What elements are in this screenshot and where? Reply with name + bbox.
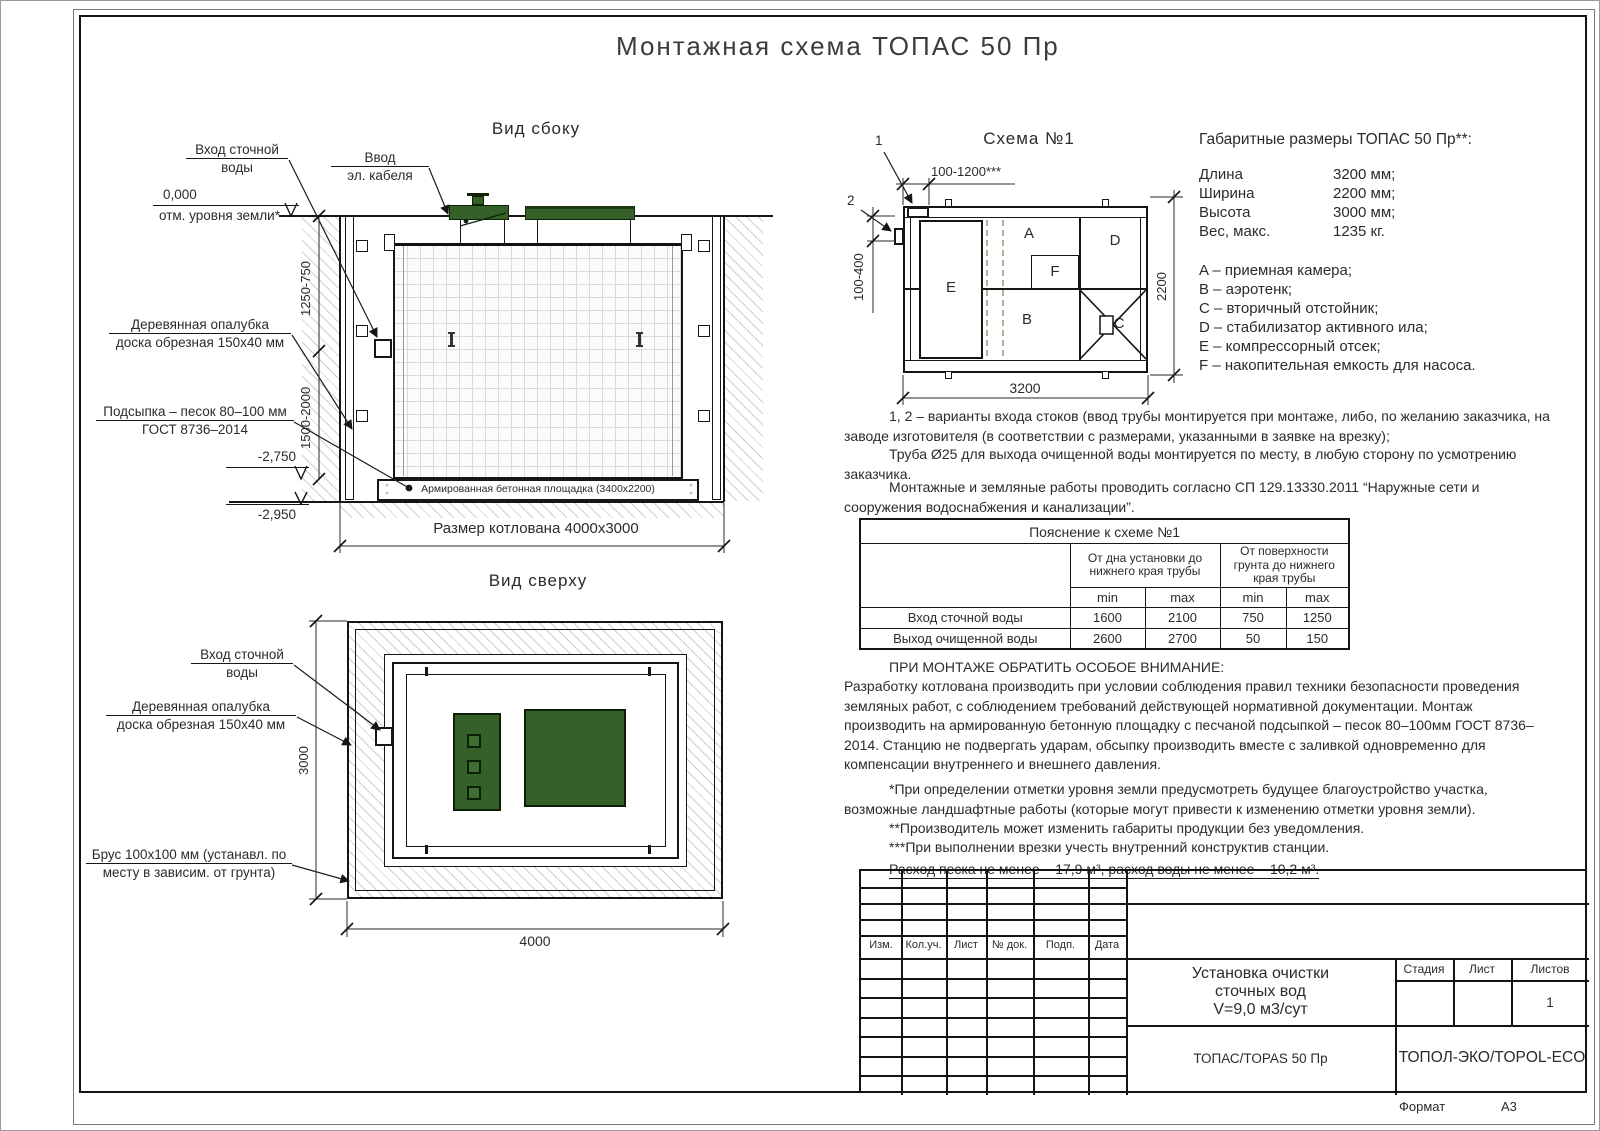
schema-lug <box>1102 199 1109 207</box>
attention-body: Разработку котлована производить при усл… <box>844 677 1554 775</box>
compartment-c-label: C <box>1109 315 1129 332</box>
schema-dim-bottom: 3200 <box>993 380 1057 396</box>
tank-lug <box>648 667 651 676</box>
schema-dim-right: 2200 <box>1153 249 1170 325</box>
format-value: А3 <box>1501 1099 1517 1114</box>
tank-lug <box>425 845 428 854</box>
top-view-title: Вид сверху <box>458 571 618 591</box>
row-value: 150 <box>1286 628 1349 649</box>
row-value: 2600 <box>1070 628 1145 649</box>
formwork-board-right <box>712 216 721 500</box>
level-minus-2950: -2,950 <box>226 507 296 522</box>
spec-label: Высота <box>1199 204 1251 221</box>
schema-callout-2: 2 <box>847 193 855 208</box>
soil-hatch-right <box>725 217 763 501</box>
legend-item: F – накопительная емкость для насоса. <box>1199 357 1476 374</box>
inlet-label-side-line1: Вход сточной <box>186 142 288 159</box>
spec-value: 2200 мм; <box>1333 185 1395 202</box>
tank-lid-right <box>525 206 635 220</box>
tb-col-podp: Подп. <box>1033 939 1088 951</box>
tank-shoulder-left <box>384 234 395 251</box>
inlet-label-top-line1: Вход сточной <box>191 647 293 664</box>
inlet-pipe-top <box>375 727 393 746</box>
formwork-label-top-line2: доска обрезная 150x40 мм <box>106 717 296 732</box>
max-header: max <box>1286 587 1349 607</box>
table-row: Вход сточной воды 1600 2100 750 1250 <box>860 607 1349 628</box>
min-header: min <box>1220 587 1286 607</box>
schema-flange-pos2 <box>894 228 904 245</box>
schema-wall-bottom <box>905 360 1146 361</box>
attention-footnote-1: *При определении отметки уровня земли пр… <box>844 780 1554 819</box>
beam-label-line2: месту в зависим. от грунта) <box>86 865 292 880</box>
pit-size-label: Размер котлована 4000x3000 <box>431 520 641 537</box>
level-zero: 0,000 <box>163 187 197 202</box>
side-view-title: Вид сбоку <box>451 119 621 139</box>
beam-label-line1: Брус 100x100 мм (устанавл. по <box>86 847 292 864</box>
spec-value: 3200 мм; <box>1333 166 1395 183</box>
row-value: 2700 <box>1145 628 1220 649</box>
dim-3000-topview: 3000 <box>295 715 312 807</box>
compartment-b-label: B <box>1017 311 1037 328</box>
doc-title-line3: V=9,0 м3/сут <box>1126 1001 1395 1019</box>
doc-title-line2: сточных вод <box>1126 983 1395 1001</box>
note-variants: 1, 2 – варианты входа стоков (ввод трубы… <box>844 407 1552 446</box>
dim-1500-2000: 1500-2000 <box>297 363 314 473</box>
row-value: 50 <box>1220 628 1286 649</box>
tb-col-ndok: № док. <box>986 939 1033 951</box>
drawing-sheet: Монтажная схема ТОПАС 50 Пр Вид сбоку Ар… <box>0 0 1600 1131</box>
formwork-label-top-line1: Деревянная опалубка <box>106 699 296 716</box>
legend-item: A – приемная камера; <box>1199 262 1352 279</box>
tank-wall-inner-right <box>672 246 673 476</box>
explain-table-title: Пояснение к схеме №1 <box>860 519 1349 544</box>
legend-item: C – вторичный отстойник; <box>1199 300 1378 317</box>
schema-lug <box>945 199 952 207</box>
level-2750-shelf <box>226 467 309 468</box>
attention-footnote-2: **Производитель может изменить габариты … <box>844 819 1554 839</box>
formwork-bracket <box>356 240 368 252</box>
inlet-pipe-side <box>374 339 392 358</box>
sheets-label: Листов <box>1511 962 1589 976</box>
explain-table-corner <box>860 544 1070 608</box>
lid-small-window <box>467 786 481 800</box>
specs-title: Габаритные размеры ТОПАС 50 Пр**: <box>1199 131 1472 149</box>
schema-wall-left <box>910 218 911 361</box>
row-value: 750 <box>1220 607 1286 628</box>
legend-item: D – стабилизатор активного ила; <box>1199 319 1428 336</box>
page-title: Монтажная схема ТОПАС 50 Пр <box>616 31 1016 62</box>
formwork-bracket <box>356 410 368 422</box>
pit-bottom-line <box>229 501 724 503</box>
min-header: min <box>1070 587 1145 607</box>
dim-1250-750: 1250-750 <box>297 241 314 336</box>
soil-hatch-bottom <box>340 502 724 518</box>
tank-lug <box>425 667 428 676</box>
row-value: 1250 <box>1286 607 1349 628</box>
lifting-mark <box>448 332 455 334</box>
slab-label: Армированная бетонная площадка (3400x220… <box>397 483 679 495</box>
level-zero-shelf <box>153 205 299 206</box>
lifting-mark <box>636 345 643 347</box>
schema-wall-right <box>1140 218 1141 361</box>
compartment-a-label: A <box>1019 225 1039 242</box>
doc-title-line1: Установка очистки <box>1126 965 1395 983</box>
compartment-e-label: E <box>941 279 961 296</box>
cable-label-line1: Ввод <box>331 150 429 167</box>
schema-divider-vertical <box>1079 218 1081 361</box>
note-works: Монтажные и земляные работы проводить со… <box>844 478 1552 517</box>
row-label: Выход очищенной воды <box>860 628 1070 649</box>
formwork-bracket <box>698 325 710 337</box>
lid-small-window <box>467 760 481 774</box>
spec-value: 1235 кг. <box>1333 223 1385 240</box>
formwork-board-left <box>345 216 354 500</box>
formwork-bracket <box>698 240 710 252</box>
schema-wall-top <box>905 217 1146 218</box>
schema-dim-left: 100-400 <box>850 239 867 315</box>
company-name: ТОПОЛ-ЭКО/TOPOL-ECO <box>1395 1049 1589 1067</box>
format-label: Формат <box>1399 1099 1445 1114</box>
schema-inlet-pos1 <box>907 207 929 218</box>
max-header: max <box>1145 587 1220 607</box>
formwork-bracket <box>698 410 710 422</box>
schema-divider-left <box>903 288 919 290</box>
lid-vent-stem <box>472 196 484 205</box>
bedding-label-line1: Подсыпка – песок 80–100 мм <box>96 404 294 421</box>
schema-title: Схема №1 <box>954 129 1104 149</box>
formwork-bracket <box>356 325 368 337</box>
stage-label: Стадия <box>1395 962 1453 976</box>
level-minus-2750: -2,750 <box>226 449 296 464</box>
sheet-label: Лист <box>1453 962 1511 976</box>
tb-col-data: Дата <box>1088 939 1126 951</box>
sheets-value: 1 <box>1511 995 1589 1010</box>
inlet-label-top-line2: воды <box>191 665 293 680</box>
tb-col-koluch: Кол.уч. <box>901 939 946 951</box>
lid-vent-cap <box>467 193 489 196</box>
spec-label: Ширина <box>1199 185 1254 202</box>
legend-item: E – компрессорный отсек; <box>1199 338 1381 355</box>
row-value: 2100 <box>1145 607 1220 628</box>
tb-col-izm: Изм. <box>861 939 901 951</box>
explain-table-group2: От поверхности грунта до нижнего края тр… <box>1220 544 1349 588</box>
table-row: Выход очищенной воды 2600 2700 50 150 <box>860 628 1349 649</box>
schema-callout-1: 1 <box>875 133 883 148</box>
tank-lid-left <box>449 205 509 220</box>
tank-body <box>393 243 683 479</box>
pit-wall-right <box>723 216 725 502</box>
lifting-mark <box>636 332 643 334</box>
tank-shoulder-right <box>681 234 692 251</box>
schema-lug <box>945 371 952 379</box>
lid-large-top <box>524 709 626 807</box>
lid-small-window <box>467 734 481 748</box>
bedding-label-line2: ГОСТ 8736–2014 <box>96 422 294 437</box>
tb-col-list: Лист <box>946 939 986 951</box>
pit-wall-left <box>339 216 341 502</box>
lid-neck-right <box>537 217 631 243</box>
level-2950-shelf <box>226 504 309 505</box>
tank-wall-inner-left <box>403 246 404 476</box>
level-zero-sub: отм. уровня земли* <box>159 208 280 223</box>
compartment-d-label: D <box>1105 232 1125 249</box>
tank-lug <box>648 845 651 854</box>
row-value: 1600 <box>1070 607 1145 628</box>
legend-item: B – аэротенк; <box>1199 281 1292 298</box>
attention-heading: ПРИ МОНТАЖЕ ОБРАТИТЬ ОСОБОЕ ВНИМАНИЕ: <box>844 658 1554 678</box>
spec-label: Длина <box>1199 166 1243 183</box>
spec-label: Вес, макс. <box>1199 223 1270 240</box>
title-block: Изм. Кол.уч. Лист № док. Подп. Дата Уста… <box>859 869 1587 1093</box>
product-name: ТОПАС/TOPAS 50 Пр <box>1126 1051 1395 1066</box>
schema-lug <box>1102 371 1109 379</box>
schema-dim-top: 100-1200*** <box>931 164 1001 179</box>
lid-neck-left <box>460 217 505 243</box>
formwork-label-side-line2: доска обрезная 150x40 мм <box>109 335 291 350</box>
lifting-mark <box>448 345 455 347</box>
inlet-label-side-line2: воды <box>186 160 288 175</box>
attention-footnote-3: ***При выполнении врезки учесть внутренн… <box>844 838 1554 858</box>
explain-table: Пояснение к схеме №1 От дна установки до… <box>859 518 1350 650</box>
cable-label-line2: эл. кабеля <box>331 168 429 183</box>
compartment-f-label: F <box>1045 263 1065 280</box>
formwork-label-side-line1: Деревянная опалубка <box>109 317 291 334</box>
row-label: Вход сточной воды <box>860 607 1070 628</box>
spec-value: 3000 мм; <box>1333 204 1395 221</box>
dim-4000-topview: 4000 <box>475 933 595 949</box>
explain-table-group1: От дна установки до нижнего края трубы <box>1070 544 1220 588</box>
